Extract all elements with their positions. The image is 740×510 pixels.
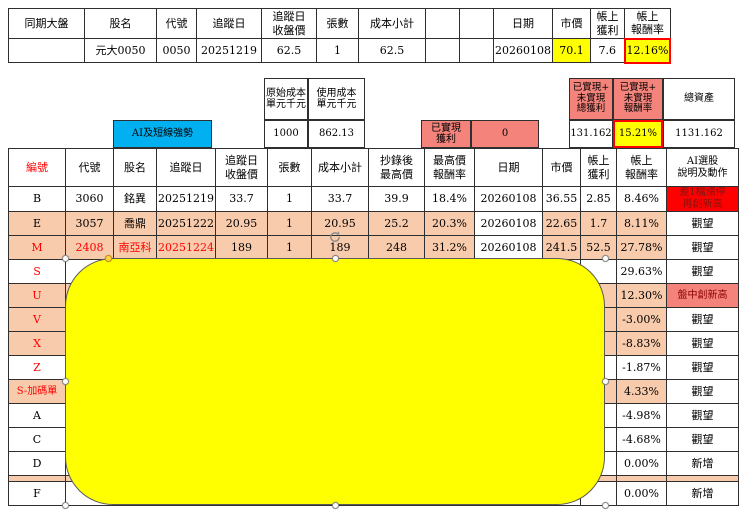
cell-action-V[interactable]: 觀望 <box>667 308 739 332</box>
top-value-0[interactable] <box>9 39 85 63</box>
top-value-3[interactable]: 20251219 <box>197 39 262 63</box>
cell-lots-M[interactable]: 1 <box>268 236 312 260</box>
cell-id-S-加碼單[interactable]: S-加碼單 <box>9 380 66 404</box>
cell-return_pct-E[interactable]: 8.11% <box>617 212 667 236</box>
cell-price-E[interactable]: 22.65 <box>543 212 581 236</box>
top-header-7[interactable] <box>426 9 460 39</box>
cell-cost-B[interactable]: 33.7 <box>312 187 369 212</box>
cell-id-U[interactable]: U <box>9 284 66 308</box>
benchmark-table: 同期大盤股名代號追蹤日追蹤日 收盤價張數成本小計日期市價帳上 獲利帳上 報酬率元… <box>8 8 671 64</box>
shape-handle-ne[interactable] <box>602 255 609 262</box>
cell-id-C[interactable]: C <box>9 428 66 452</box>
total-profit-header[interactable]: 已實現+ 未實現 總獲利 <box>569 78 613 120</box>
cell-action-B[interactable]: 差1檔漲停 再創新高 <box>667 187 739 212</box>
top-value-4[interactable]: 62.5 <box>262 39 317 63</box>
cell-high-B[interactable]: 39.9 <box>369 187 425 212</box>
top-value-10[interactable]: 70.1 <box>553 39 591 63</box>
stock-row-B: B3060銘異2025121933.7133.739.918.4%2026010… <box>9 187 739 212</box>
cell-action-X[interactable]: 觀望 <box>667 332 739 356</box>
used-cost-header[interactable]: 使用成本 單元千元 <box>308 78 365 120</box>
cell-id-V[interactable]: V <box>9 308 66 332</box>
cell-lots-B[interactable]: 1 <box>268 187 312 212</box>
top-value-5[interactable]: 1 <box>317 39 359 63</box>
top-header-6[interactable]: 成本小計 <box>359 9 426 39</box>
top-value-2[interactable]: 0050 <box>157 39 197 63</box>
cell-track_date-B[interactable]: 20251219 <box>157 187 216 212</box>
col-header-4[interactable]: 追蹤日 收盤價 <box>216 149 268 187</box>
original-cost-value[interactable]: 1000 <box>264 120 308 148</box>
cell-id-M[interactable]: M <box>9 236 66 260</box>
cell-return_pct-U[interactable]: 12.30% <box>617 284 667 308</box>
cell-action-U[interactable]: 盤中創新高 <box>667 284 739 308</box>
col-header-11[interactable]: 帳上 獲利 <box>581 149 617 187</box>
top-header-4[interactable]: 追蹤日 收盤價 <box>262 9 317 39</box>
top-header-12[interactable]: 帳上 報酬率 <box>625 9 671 39</box>
used-cost-value[interactable]: 862.13 <box>308 120 365 148</box>
col-header-13[interactable]: AI選股 說明及動作 <box>667 149 739 187</box>
realized-profit-label[interactable]: 已實現 獲利 <box>421 120 471 148</box>
top-value-6[interactable]: 62.5 <box>359 39 426 63</box>
cell-date-E[interactable]: 20260108 <box>475 212 543 236</box>
cell-lots-E[interactable]: 1 <box>268 212 312 236</box>
cell-return_pct-V[interactable]: -3.00% <box>617 308 667 332</box>
col-header-0[interactable]: 編號 <box>9 149 66 187</box>
cell-return_pct-M[interactable]: 27.78% <box>617 236 667 260</box>
cell-id-F[interactable]: F <box>9 482 66 506</box>
col-header-7[interactable]: 抄錄後 最高價 <box>369 149 425 187</box>
cell-action-F[interactable]: 新增 <box>667 482 739 506</box>
total-assets-header[interactable]: 總資產 <box>663 78 735 120</box>
cell-action-M[interactable]: 觀望 <box>667 236 739 260</box>
cell-high_return-B[interactable]: 18.4% <box>425 187 475 212</box>
cell-return_pct-S-加碼單[interactable]: 4.33% <box>617 380 667 404</box>
col-header-8[interactable]: 最高價 報酬率 <box>425 149 475 187</box>
total-assets-value[interactable]: 1131.162 <box>663 120 735 148</box>
cell-code-E[interactable]: 3057 <box>66 212 114 236</box>
top-header-5[interactable]: 張數 <box>317 9 359 39</box>
shape-handle-nw[interactable] <box>62 255 69 262</box>
top-header-0[interactable]: 同期大盤 <box>9 9 85 39</box>
cell-price-M[interactable]: 241.5 <box>543 236 581 260</box>
cell-id-B[interactable]: B <box>9 187 66 212</box>
cell-track_close-E[interactable]: 20.95 <box>216 212 268 236</box>
total-return-header[interactable]: 已實現+ 未實現 報酬率 <box>613 78 663 120</box>
cell-profit-B[interactable]: 2.85 <box>581 187 617 212</box>
shape-handle-n[interactable] <box>332 255 339 262</box>
cell-high-M[interactable]: 248 <box>369 236 425 260</box>
col-header-9[interactable]: 日期 <box>475 149 543 187</box>
rotate-handle-icon[interactable] <box>328 230 342 244</box>
cell-id-Z[interactable]: Z <box>9 356 66 380</box>
cell-high-E[interactable]: 25.2 <box>369 212 425 236</box>
shape-handle-sw[interactable] <box>62 502 69 509</box>
cell-action-A[interactable]: 觀望 <box>667 404 739 428</box>
spreadsheet-page: { "colors": { "yellow": "#FFFF00", "salm… <box>0 0 740 510</box>
cell-id-X[interactable]: X <box>9 332 66 356</box>
cell-track_close-B[interactable]: 33.7 <box>216 187 268 212</box>
col-header-3[interactable]: 追蹤日 <box>157 149 216 187</box>
top-header-10[interactable]: 市價 <box>553 9 591 39</box>
realized-profit-value[interactable]: 0 <box>471 120 539 148</box>
top-header-8[interactable] <box>460 9 494 39</box>
cell-return_pct-A[interactable]: -4.98% <box>617 404 667 428</box>
cell-action-C[interactable]: 觀望 <box>667 428 739 452</box>
total-return-value[interactable]: 15.21% <box>613 120 663 148</box>
cell-action-Z[interactable]: 觀望 <box>667 356 739 380</box>
stock-row-E: E3057喬鼎2025122220.95120.9525.220.3%20260… <box>9 212 739 236</box>
original-cost-header[interactable]: 原始成本 單元千元 <box>264 78 308 120</box>
top-header-3[interactable]: 追蹤日 <box>197 9 262 39</box>
col-header-6[interactable]: 成本小計 <box>312 149 369 187</box>
shape-handle-w[interactable] <box>62 378 69 385</box>
cell-id-E[interactable]: E <box>9 212 66 236</box>
col-header-12[interactable]: 帳上 報酬率 <box>617 149 667 187</box>
top-header-2[interactable]: 代號 <box>157 9 197 39</box>
cell-date-M[interactable]: 20260108 <box>475 236 543 260</box>
cell-profit-E[interactable]: 1.7 <box>581 212 617 236</box>
stock-row-M: M2408南亞科20251224189118924831.2%202601082… <box>9 236 739 260</box>
shape-handle-s[interactable] <box>332 502 339 509</box>
col-header-5[interactable]: 張數 <box>268 149 312 187</box>
col-header-10[interactable]: 市價 <box>543 149 581 187</box>
top-header-9[interactable]: 日期 <box>494 9 553 39</box>
top-value-9[interactable]: 20260108 <box>494 39 553 63</box>
cell-id-D[interactable]: D <box>9 452 66 476</box>
yellow-shape-overlay[interactable] <box>65 258 605 505</box>
cell-return_pct-Z[interactable]: -1.87% <box>617 356 667 380</box>
cell-high_return-M[interactable]: 31.2% <box>425 236 475 260</box>
cell-return_pct-C[interactable]: -4.68% <box>617 428 667 452</box>
cell-id-A[interactable]: A <box>9 404 66 428</box>
top-value-12[interactable]: 12.16% <box>625 39 671 63</box>
top-value-1[interactable]: 元大0050 <box>85 39 157 63</box>
cell-return_pct-B[interactable]: 8.46% <box>617 187 667 212</box>
top-value-8[interactable] <box>460 39 494 63</box>
col-header-2[interactable]: 股名 <box>114 149 157 187</box>
col-header-1[interactable]: 代號 <box>66 149 114 187</box>
cell-profit-M[interactable]: 52.5 <box>581 236 617 260</box>
shape-handle-e[interactable] <box>602 378 609 385</box>
top-value-11[interactable]: 7.6 <box>591 39 625 63</box>
cell-date-B[interactable]: 20260108 <box>475 187 543 212</box>
cell-action-E[interactable]: 觀望 <box>667 212 739 236</box>
cell-high_return-E[interactable]: 20.3% <box>425 212 475 236</box>
cell-track_close-M[interactable]: 189 <box>216 236 268 260</box>
cell-action-S-加碼單[interactable]: 觀望 <box>667 380 739 404</box>
cell-return_pct-S[interactable]: 29.63% <box>617 260 667 284</box>
cell-name-M[interactable]: 南亞科 <box>114 236 157 260</box>
cell-return_pct-X[interactable]: -8.83% <box>617 332 667 356</box>
shape-adjust-handle[interactable] <box>105 255 112 262</box>
top-header-1[interactable]: 股名 <box>85 9 157 39</box>
ai-tag-cell[interactable]: AI及短線強勢 <box>113 120 212 148</box>
cell-name-E[interactable]: 喬鼎 <box>114 212 157 236</box>
top-header-11[interactable]: 帳上 獲利 <box>591 9 625 39</box>
cell-return_pct-D[interactable]: 0.00% <box>617 452 667 476</box>
cell-name-B[interactable]: 銘異 <box>114 187 157 212</box>
cell-track_date-E[interactable]: 20251222 <box>157 212 216 236</box>
top-value-7[interactable] <box>426 39 460 63</box>
cell-code-B[interactable]: 3060 <box>66 187 114 212</box>
shape-handle-se[interactable] <box>602 502 609 509</box>
cell-id-S[interactable]: S <box>9 260 66 284</box>
cell-action-D[interactable]: 新增 <box>667 452 739 476</box>
cell-action-S[interactable]: 觀望 <box>667 260 739 284</box>
total-profit-value[interactable]: 131.162 <box>569 120 613 148</box>
cell-return_pct-F[interactable]: 0.00% <box>617 482 667 506</box>
cell-price-B[interactable]: 36.55 <box>543 187 581 212</box>
cell-track_date-M[interactable]: 20251224 <box>157 236 216 260</box>
